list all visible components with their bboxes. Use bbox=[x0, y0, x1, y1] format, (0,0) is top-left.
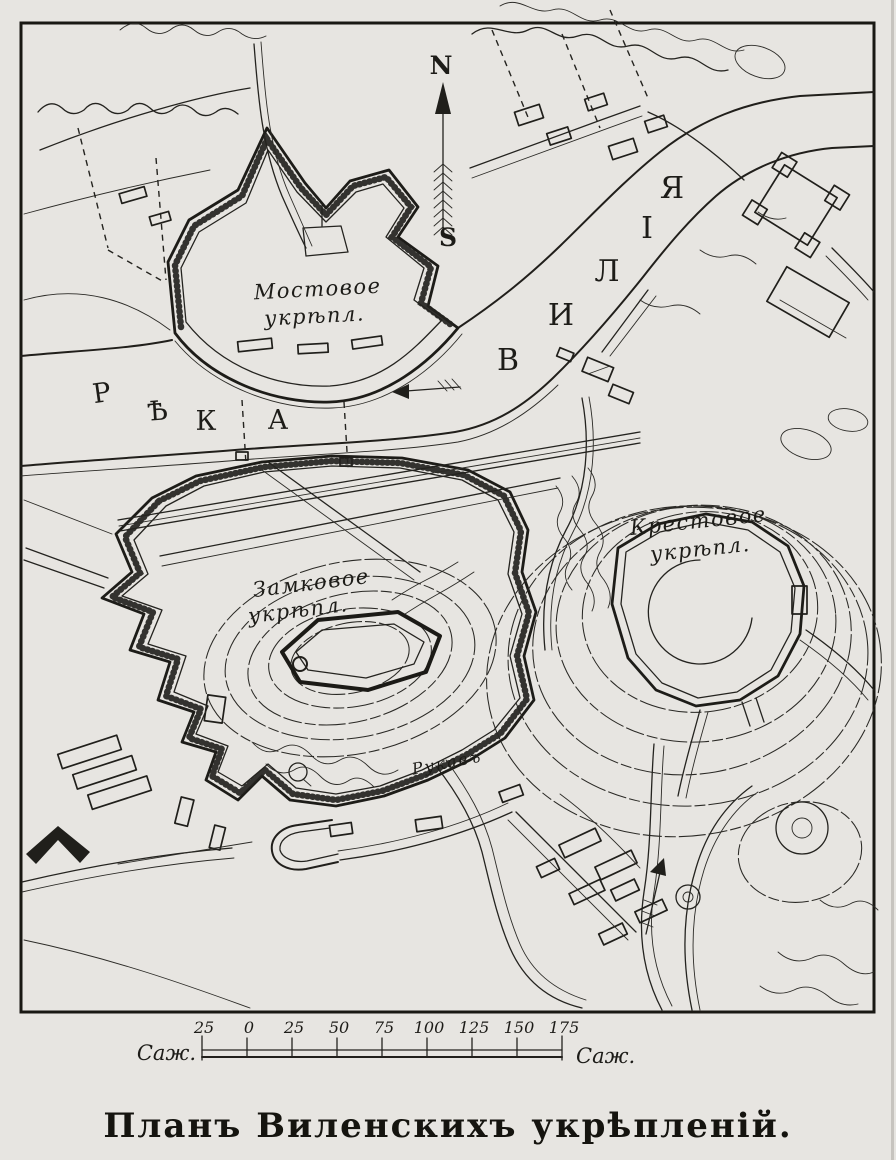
river-letter: Л bbox=[594, 254, 619, 289]
scale-tick: 150 bbox=[504, 1018, 535, 1037]
topright-roads bbox=[767, 248, 874, 338]
cross-fort: Крестовое укрѣпл. bbox=[612, 502, 807, 726]
river-letter: А bbox=[268, 405, 289, 436]
cross-hill-contours bbox=[465, 212, 896, 862]
south-town-blocks bbox=[329, 785, 667, 945]
scale-tick: 50 bbox=[329, 1018, 349, 1037]
compass-rose: N S bbox=[430, 51, 457, 252]
compass-south-label: S bbox=[439, 223, 457, 252]
bridge-fort-label2: укрѣпл. bbox=[263, 301, 366, 330]
river-name-left: Р Ѣ К А bbox=[91, 377, 289, 437]
cross-fort-label2: укрѣпл. bbox=[648, 532, 752, 567]
south-roads bbox=[272, 630, 874, 1010]
scale-unit-left: Саж. bbox=[137, 1041, 196, 1065]
river-letter: В bbox=[497, 343, 519, 378]
river-letter: І bbox=[641, 211, 653, 246]
bridge-dashed-lines bbox=[236, 400, 352, 468]
river-letter: К bbox=[196, 406, 217, 437]
bridge-fort-label: Мостовое bbox=[252, 274, 382, 305]
stream-label: Рукавъ bbox=[409, 746, 483, 778]
map-title: Планъ Виленскихъ укрѣпленій. bbox=[0, 1106, 896, 1146]
scale-tick: 25 bbox=[193, 1018, 214, 1037]
compass-north-label: N bbox=[430, 51, 453, 80]
river-letter: И bbox=[548, 298, 574, 333]
river-meanders bbox=[472, 2, 790, 85]
river-letter: Ѣ bbox=[146, 395, 169, 427]
topright-village bbox=[470, 10, 744, 180]
scale-bar: 25 0 25 50 75 100 125 150 175 Саж. Саж. bbox=[137, 1018, 635, 1068]
map-svg: Р Ѣ К А В И Л І Я Мостовое укрѣпл. N S bbox=[0, 0, 896, 1160]
scale-tick: 25 bbox=[283, 1018, 304, 1037]
compass-arrowhead bbox=[435, 82, 451, 114]
scale-unit-right: Саж. bbox=[576, 1044, 635, 1068]
river-letter: Р bbox=[91, 377, 113, 410]
bridge-fort: Мостовое укрѣпл. bbox=[168, 128, 458, 402]
bridge-fort-outer bbox=[168, 128, 458, 402]
river-flow-arrow bbox=[392, 379, 461, 399]
scale-tick: 100 bbox=[414, 1018, 445, 1037]
river-name-right: В И Л І Я bbox=[497, 171, 684, 378]
southeast-hills bbox=[676, 792, 878, 1005]
map-sheet: Р Ѣ К А В И Л І Я Мостовое укрѣпл. N S bbox=[0, 0, 896, 1160]
chevron-building bbox=[26, 826, 90, 864]
scale-tick: 0 bbox=[244, 1018, 254, 1037]
scale-tick: 75 bbox=[374, 1018, 394, 1037]
scale-tick: 125 bbox=[459, 1018, 490, 1037]
upper-castle-walls bbox=[282, 612, 440, 690]
scale-tick: 175 bbox=[549, 1018, 580, 1037]
river-letter: Я bbox=[660, 171, 684, 206]
